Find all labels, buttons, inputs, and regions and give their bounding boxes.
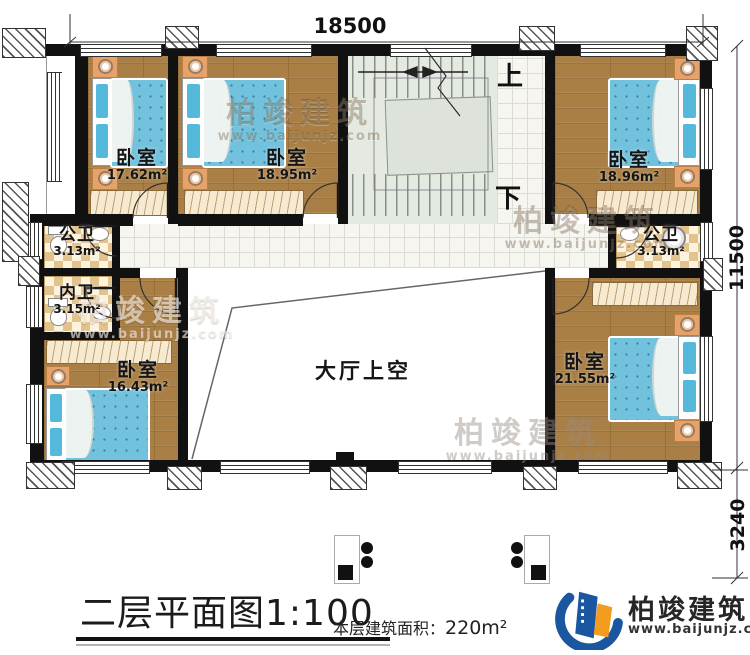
wardrobe: [596, 190, 698, 216]
nightstand: [674, 166, 700, 188]
lamp-icon: [680, 169, 695, 184]
section-mark: [524, 535, 550, 584]
wardrobe: [184, 190, 304, 216]
stair-down-label: 下: [495, 178, 521, 215]
section-mark-square: [531, 565, 546, 580]
pillow: [94, 82, 110, 120]
section-mark-dot: [511, 556, 523, 568]
room-area: 17.62m²: [97, 169, 177, 184]
room-name: 公卫: [44, 226, 110, 245]
wall: [178, 214, 303, 226]
pier-hatch: [519, 26, 555, 51]
room-area: 3.13m²: [44, 245, 110, 258]
wardrobe: [90, 190, 168, 216]
pier-hatch: [18, 256, 40, 286]
room-label-bedroom-bottom-left: 卧室 16.43m²: [93, 360, 183, 396]
plan-title: 二层平面图1:100: [80, 584, 374, 636]
wall: [112, 276, 120, 332]
bed-blanket: [652, 338, 678, 416]
nightstand: [92, 56, 118, 78]
window: [26, 286, 42, 328]
section-mark: [334, 535, 360, 584]
window: [398, 461, 492, 474]
wall: [338, 44, 348, 224]
room-label-bedroom-top-right: 卧室 18.96m²: [584, 150, 674, 186]
room-name: 内卫: [44, 284, 110, 303]
section-mark-dot: [361, 556, 373, 568]
nightstand: [46, 366, 70, 386]
dimension-top: 18500: [300, 14, 400, 38]
nightstand: [674, 420, 700, 442]
lamp-icon: [680, 61, 695, 76]
room-label-hall-void: 大厅上空: [298, 360, 428, 384]
room-name: 卧室: [97, 148, 177, 169]
wall: [608, 224, 616, 268]
pier-hatch: [167, 466, 202, 490]
wall: [589, 268, 712, 278]
stair-landing-platform: [385, 96, 494, 176]
window: [220, 461, 310, 474]
lamp-icon: [98, 59, 113, 74]
pier-hatch: [703, 258, 723, 291]
pier-hatch: [165, 26, 199, 49]
pier-hatch: [2, 28, 46, 58]
dimension-right-porch: 3240: [727, 487, 749, 563]
brand-logo-icon: [546, 582, 624, 650]
bed-blanket: [204, 80, 232, 162]
window: [47, 72, 62, 182]
window: [390, 44, 472, 57]
wall: [75, 44, 88, 224]
window: [700, 88, 713, 170]
lamp-icon: [188, 171, 203, 186]
wall: [120, 268, 140, 278]
pillow: [185, 122, 202, 160]
nightstand: [674, 58, 700, 80]
window: [216, 44, 312, 57]
corridor-floor: [44, 224, 608, 268]
room-label-private-bath-left: 内卫 3.15m²: [44, 284, 110, 316]
room-name: 卧室: [584, 150, 674, 171]
dimension-right-main: 11500: [726, 218, 748, 298]
lamp-icon: [51, 369, 66, 384]
lamp-icon: [188, 59, 203, 74]
room-area: 18.96m²: [584, 171, 674, 186]
room-area: 16.43m²: [93, 381, 183, 396]
wall: [112, 224, 120, 272]
window: [26, 384, 42, 444]
stair-treads-upper: [352, 54, 493, 98]
section-mark-dot: [511, 542, 523, 554]
title-underline-shadow: [76, 644, 390, 646]
wall: [168, 44, 178, 224]
pier-hatch: [2, 182, 29, 262]
window: [580, 44, 666, 57]
window: [80, 44, 162, 57]
pillow: [185, 82, 202, 120]
room-name: 公卫: [626, 226, 696, 245]
stair-up-label: 上: [497, 56, 523, 93]
room-label-public-bath-left: 公卫 3.13m²: [44, 226, 110, 258]
wardrobe: [592, 282, 698, 306]
room-label-bedroom-bottom-right: 卧室 21.55m²: [530, 352, 640, 388]
pier-hatch: [523, 466, 557, 490]
pier-hatch: [677, 462, 722, 489]
room-label-public-bath-right: 公卫 3.13m²: [626, 226, 696, 258]
floor-area-value: 220m²: [445, 617, 507, 639]
floor-area-note: 本层建筑面积：220m²: [333, 615, 507, 639]
room-area: 21.55m²: [530, 373, 640, 388]
lamp-icon: [680, 423, 695, 438]
room-name: 卧室: [242, 148, 332, 169]
pillow: [48, 426, 64, 458]
window: [578, 461, 668, 474]
room-name: 大厅上空: [298, 360, 428, 384]
bed-blanket: [66, 390, 94, 458]
floor-area-label: 本层建筑面积：: [333, 619, 445, 638]
pillow: [681, 82, 698, 120]
wall: [30, 332, 120, 340]
floor-plan-canvas: 卧室 17.62m² 卧室 18.95m² 卧室 18.96m² 公卫 3.13…: [0, 0, 750, 655]
room-name: 卧室: [530, 352, 640, 373]
room-area: 3.15m²: [44, 303, 110, 316]
pier-hatch: [330, 466, 367, 490]
stair-treads-lower: [352, 174, 493, 216]
pier-hatch: [26, 462, 75, 489]
nightstand: [182, 56, 208, 78]
pillow: [681, 340, 698, 376]
pillow: [681, 378, 698, 414]
brand-url: www.baijunjz.com: [628, 622, 750, 637]
room-name: 卧室: [93, 360, 183, 381]
wall: [336, 452, 354, 462]
window: [700, 222, 713, 262]
room-area: 18.95m²: [242, 169, 332, 184]
nightstand: [182, 168, 208, 190]
pillow: [681, 122, 698, 160]
pier-hatch: [686, 26, 718, 61]
wall: [545, 44, 555, 224]
section-mark-square: [338, 565, 353, 580]
wall: [30, 268, 120, 276]
room-area: 3.13m²: [626, 245, 696, 258]
lamp-icon: [680, 317, 695, 332]
window: [62, 461, 150, 474]
room-label-bedroom-top-left: 卧室 17.62m²: [97, 148, 177, 184]
section-mark-dot: [361, 542, 373, 554]
window: [700, 336, 713, 422]
pillow: [48, 392, 64, 424]
room-label-bedroom-top-mid: 卧室 18.95m²: [242, 148, 332, 184]
nightstand: [674, 314, 700, 336]
